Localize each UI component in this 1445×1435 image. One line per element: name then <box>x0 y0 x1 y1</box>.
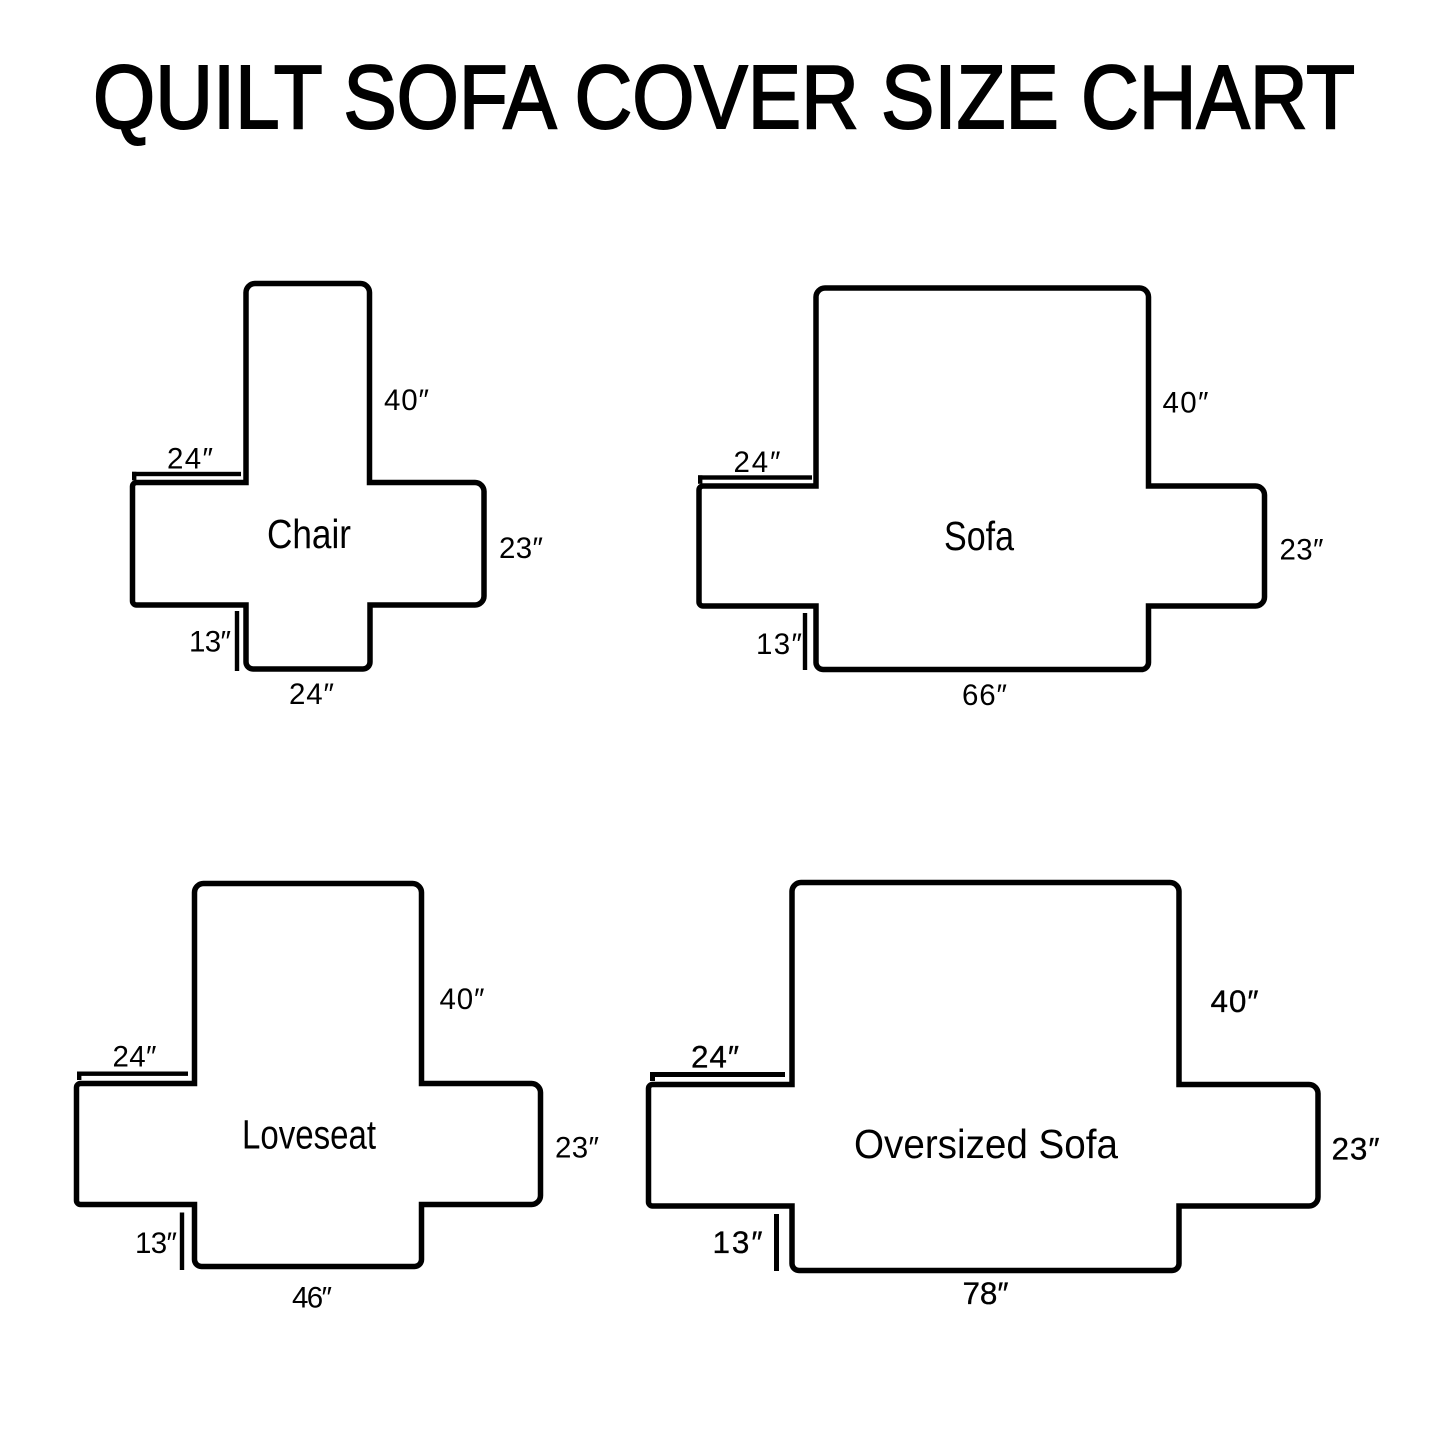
svg-text:24″: 24″ <box>167 443 213 476</box>
svg-text:QUILT SOFA COVER SIZE CHART: QUILT SOFA COVER SIZE CHART <box>93 48 1355 148</box>
svg-text:13″: 13″ <box>135 1227 177 1260</box>
svg-text:40″: 40″ <box>1163 387 1209 420</box>
svg-text:78″: 78″ <box>963 1275 1009 1311</box>
svg-text:23″: 23″ <box>555 1132 599 1165</box>
svg-text:24″: 24″ <box>691 1039 739 1075</box>
svg-text:24″: 24″ <box>289 678 334 711</box>
svg-text:13″: 13″ <box>756 628 802 661</box>
svg-text:Oversized Sofa: Oversized Sofa <box>854 1121 1118 1167</box>
svg-text:40″: 40″ <box>440 983 485 1016</box>
svg-text:40″: 40″ <box>384 384 429 417</box>
svg-text:24″: 24″ <box>734 446 781 479</box>
svg-text:23″: 23″ <box>499 532 543 565</box>
svg-text:24″: 24″ <box>113 1041 157 1074</box>
svg-text:23″: 23″ <box>1280 534 1324 567</box>
svg-text:23″: 23″ <box>1332 1130 1380 1166</box>
svg-text:13″: 13″ <box>189 626 231 659</box>
svg-text:Loveseat: Loveseat <box>242 1112 376 1158</box>
svg-text:46″: 46″ <box>292 1282 332 1315</box>
svg-text:66″: 66″ <box>962 679 1007 712</box>
svg-text:40″: 40″ <box>1211 983 1259 1019</box>
svg-text:13″: 13″ <box>713 1224 763 1260</box>
svg-text:Sofa: Sofa <box>944 513 1014 559</box>
svg-text:Chair: Chair <box>267 511 351 557</box>
